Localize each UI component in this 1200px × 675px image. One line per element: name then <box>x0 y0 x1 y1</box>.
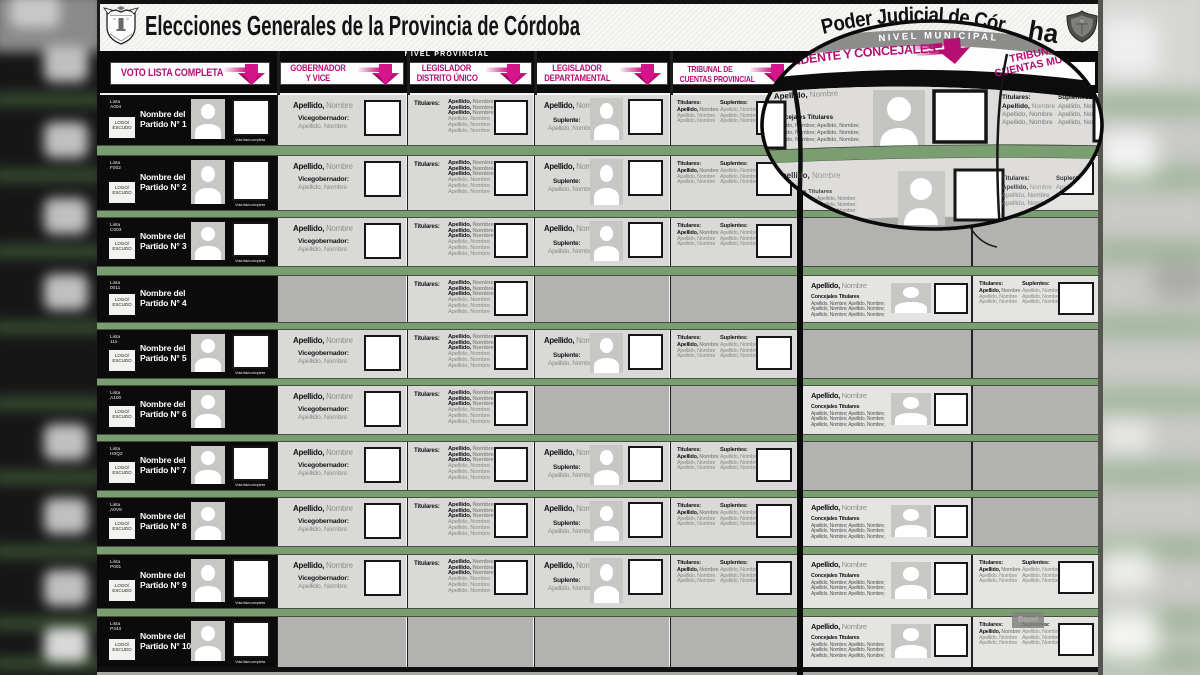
svg-text:Suplentes:: Suplentes: <box>1056 176 1087 182</box>
svg-text:Apellido, Nombre: Apellido, Nombre <box>1002 119 1053 126</box>
svg-text:Apellido, Nombre: Apellido, Nombre <box>1056 193 1103 199</box>
svg-text:Apellido, Nombre: Apellido, Nombre <box>1002 111 1053 118</box>
svg-text:Titulares:: Titulares: <box>1002 94 1031 101</box>
svg-text:Apellido, Nombre: Apellido, Nombre <box>1002 192 1050 199</box>
svg-text:Apellido, Nombre: Apellido, Nombre <box>1002 184 1052 191</box>
svg-text:Apellido, Nombre: Apellido, Nombre <box>1002 103 1055 110</box>
svg-text:Titulares:: Titulares: <box>1002 175 1030 182</box>
svg-text:ha: ha <box>1026 14 1062 49</box>
svg-text:Suplentes:: Suplentes: <box>1058 94 1091 101</box>
